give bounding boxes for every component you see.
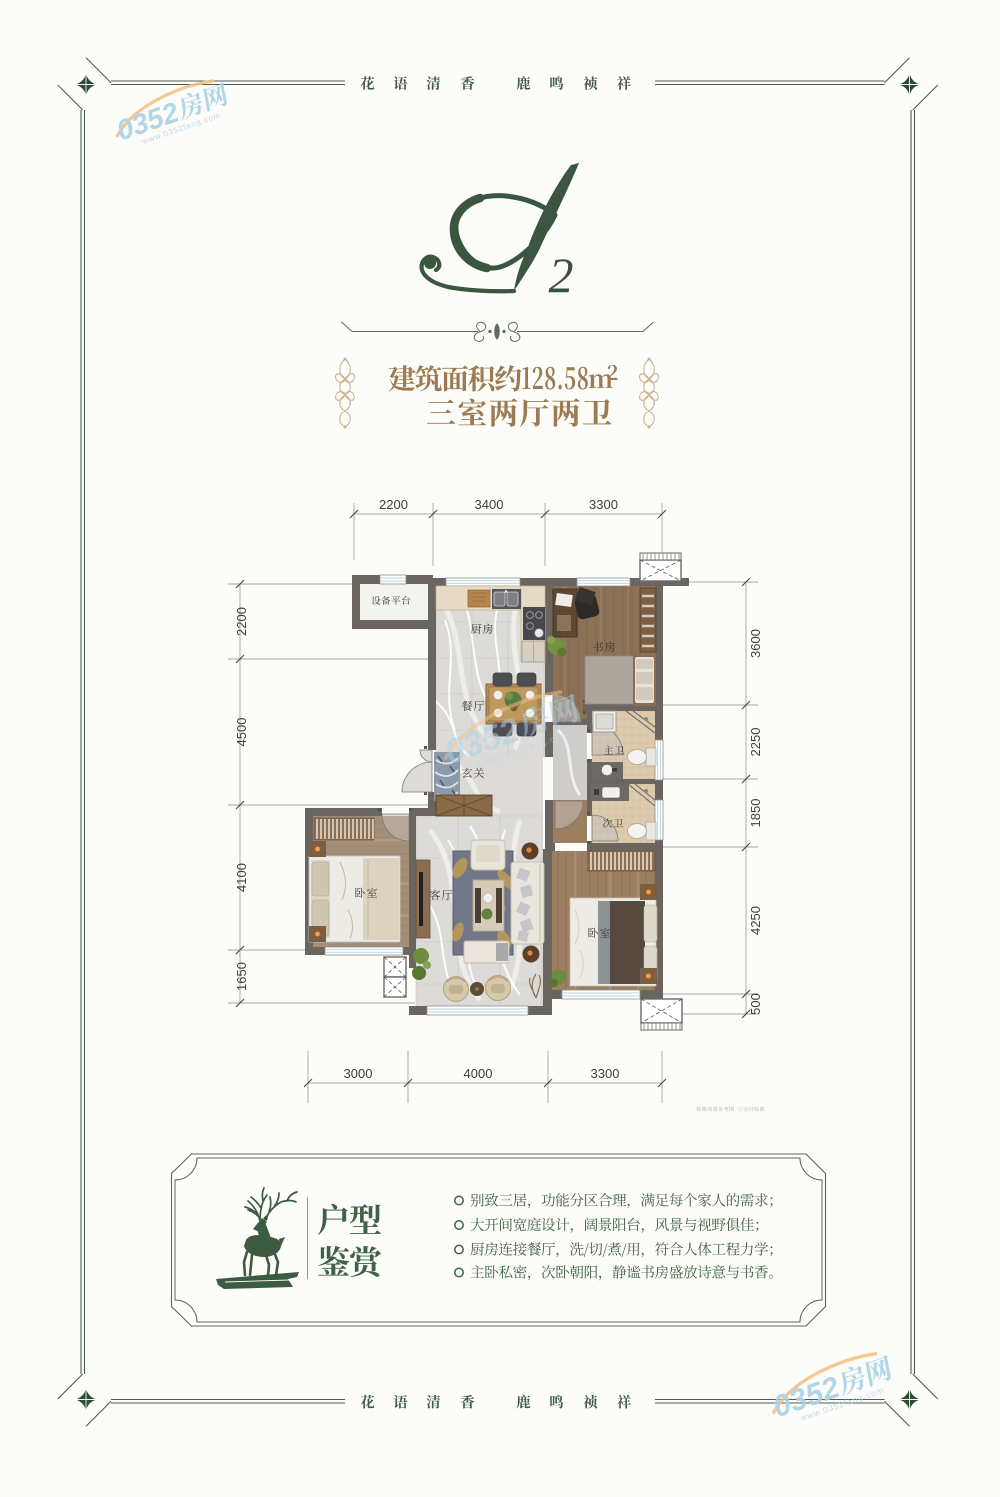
svg-text:500: 500 [748,993,763,1015]
svg-text:4500: 4500 [234,718,249,747]
svg-text:4250: 4250 [748,906,763,935]
svg-text:3000: 3000 [344,1066,373,1081]
svg-text:2200: 2200 [234,607,249,636]
svg-text:3300: 3300 [589,497,618,512]
svg-text:1650: 1650 [234,962,249,991]
svg-text:2: 2 [549,247,574,303]
svg-text:4000: 4000 [464,1066,493,1081]
svg-text:4100: 4100 [234,863,249,892]
svg-text:3400: 3400 [475,497,504,512]
svg-text:3600: 3600 [748,629,763,658]
svg-text:1850: 1850 [748,799,763,828]
svg-text:2250: 2250 [748,728,763,757]
svg-text:3300: 3300 [591,1066,620,1081]
svg-text:2200: 2200 [379,497,408,512]
